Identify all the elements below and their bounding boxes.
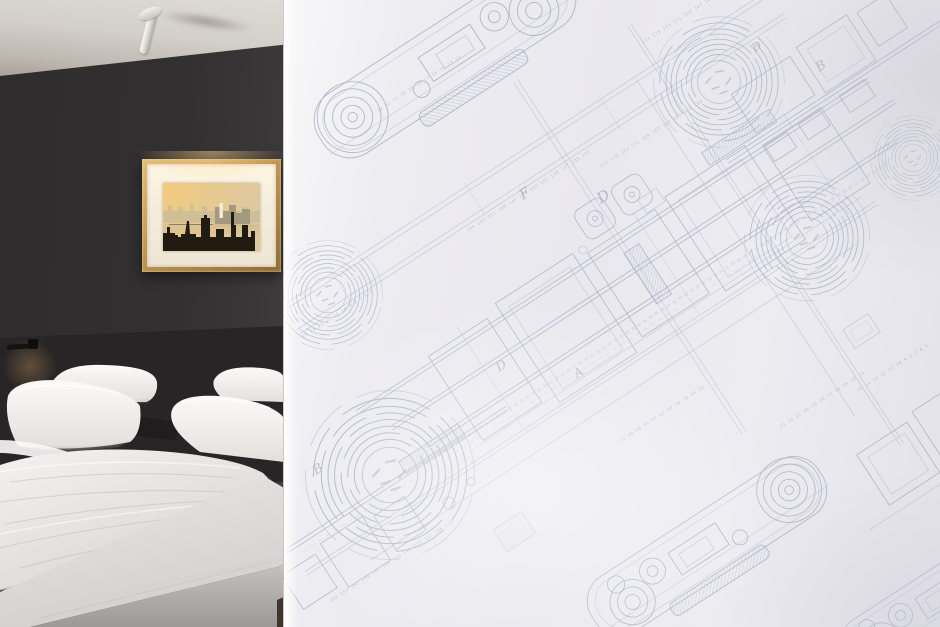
blueprint-partition-wall: 155 153 151 149 147 145 143 141 139 137 … <box>283 0 940 627</box>
camera-drawing-top-left <box>301 0 595 180</box>
letter-b: B <box>309 461 326 479</box>
dimension-numbers: 15 14 13 12 11 10 9 8 7 6 5 <box>856 343 929 393</box>
piling <box>232 225 236 251</box>
letter-d: D <box>593 186 614 208</box>
camera-drawing-bottom-right <box>829 497 940 627</box>
dimension-numbers: 155 153 151 149 147 145 143 141 139 137 … <box>466 149 592 233</box>
lit-building <box>220 203 223 218</box>
skyline-photo <box>163 183 260 251</box>
lamp-head <box>28 339 38 349</box>
dimension-numbers: 52 50 48 46 44 42 40 38 36 34 32 <box>619 384 705 443</box>
camera-drawing-bottom <box>575 443 844 627</box>
bed-area <box>0 300 284 627</box>
piling <box>251 231 255 251</box>
letter-b: B <box>812 58 829 76</box>
dimension-numbers: 177 175 173 171 169 167 165 163 161 159 <box>641 0 746 45</box>
rect-assembly-bottom-right <box>828 374 940 530</box>
dimension-numbers: 155 153 151 149 147 145 143 141 139 137 … <box>329 519 455 603</box>
dimension-numbers: 23 22 21 20 19 18 17 16 15 14 13 <box>779 370 865 429</box>
dimension-numbers: 177 175 173 171 169 167 165 163 161 159 <box>599 98 704 168</box>
picture-mat <box>147 164 276 267</box>
letter-d: D <box>492 357 510 376</box>
cross-rails-right <box>609 24 903 457</box>
film-back-assembly <box>695 0 940 183</box>
blueprint-wallpaper: 155 153 151 149 147 145 143 141 139 137 … <box>283 0 940 627</box>
piling <box>175 235 178 251</box>
film-spool-edge <box>283 220 403 371</box>
framed-picture <box>142 159 281 272</box>
small-parts <box>493 188 880 552</box>
room-interior <box>0 0 290 627</box>
hotel-room-photograph: 155 153 151 149 147 145 143 141 139 137 … <box>0 0 940 627</box>
